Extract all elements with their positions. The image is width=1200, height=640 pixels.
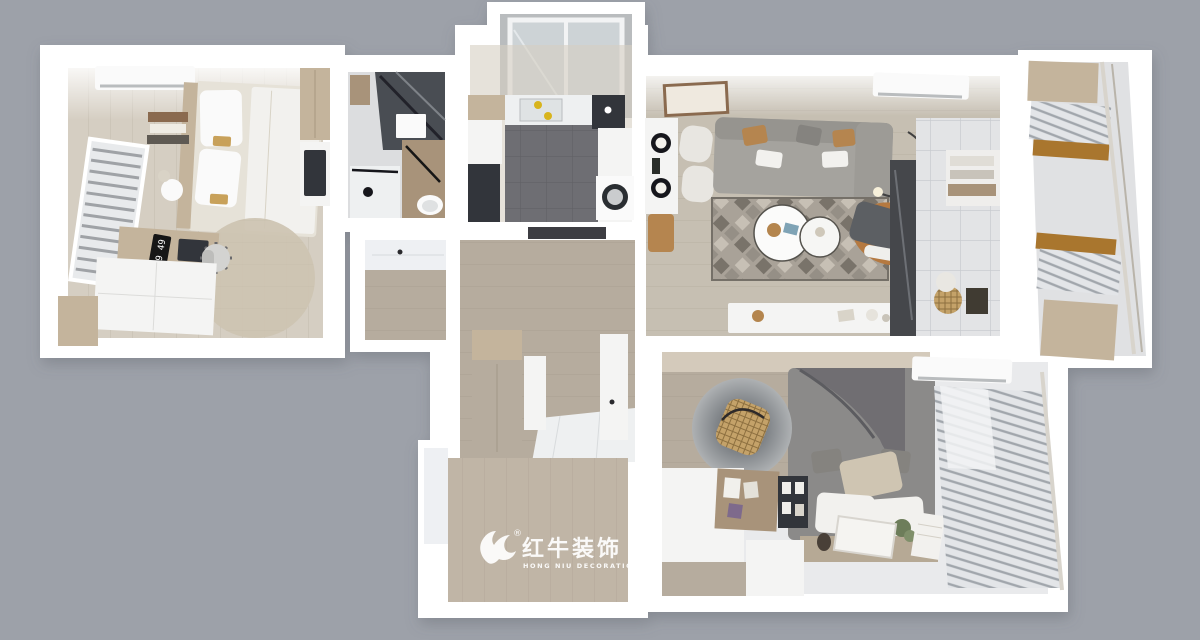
- wood-shelf: [948, 184, 996, 196]
- dining-chair: [680, 165, 715, 204]
- side-cart: [648, 214, 674, 252]
- pinned-photo: [727, 503, 743, 519]
- accent-pillow: [213, 136, 231, 147]
- door-threshold: [528, 227, 606, 239]
- hanging-chair: [692, 378, 792, 478]
- door-handle: [398, 250, 403, 255]
- bag: [817, 533, 831, 551]
- table-lamp: [158, 170, 170, 182]
- tv-console: [728, 303, 906, 333]
- window-blinds: [934, 372, 1062, 590]
- faucet: [363, 187, 373, 197]
- dishware: [534, 101, 542, 109]
- balcony-cabinet-top: [1027, 61, 1098, 103]
- bedroom-left: 9 49: [58, 66, 330, 346]
- corner-cabinet: [58, 296, 98, 346]
- cabinet-handle: [610, 400, 615, 405]
- pinned-paper: [743, 481, 759, 498]
- wall-shelf-books: [147, 112, 189, 144]
- dishware: [544, 112, 552, 120]
- balcony-right: [1027, 61, 1146, 361]
- open-wardrobe: [946, 150, 1000, 206]
- sofa-pillow: [822, 151, 849, 168]
- white-desk-low: [746, 540, 804, 596]
- brand-name-en: HONG NIU DECORATION: [523, 562, 640, 570]
- kitchen: [468, 14, 634, 239]
- watermark-platform: ® 红牛装饰 HONG NIU DECORATION: [424, 448, 640, 602]
- kitchen-shelf: [468, 95, 505, 120]
- tv-panel: [304, 150, 326, 196]
- side-table: [161, 179, 183, 201]
- bedroom-bottom: [662, 352, 1062, 596]
- dining-table: [645, 118, 678, 214]
- floorplan-render: 9 49: [0, 0, 1200, 640]
- desk-wood-front: [662, 562, 746, 596]
- folded-towels: [950, 156, 994, 166]
- vanity-counter: [350, 166, 400, 218]
- bathroom: [348, 72, 445, 218]
- brand-name-cn: 红牛装饰: [522, 536, 622, 562]
- registered-mark: ®: [513, 529, 522, 539]
- pinned-paper: [723, 477, 741, 498]
- dark-basket: [966, 288, 988, 314]
- floorplan-canvas: 9 49: [0, 0, 1200, 640]
- floor-tray: [834, 516, 896, 558]
- blinds-lower: [1036, 249, 1121, 296]
- kitchen-cabinet: [468, 120, 502, 164]
- table-plant: [652, 158, 660, 174]
- balcony-cabinet-bottom: [1040, 299, 1118, 360]
- console-decor: [752, 310, 764, 322]
- blinds-upper: [1029, 101, 1111, 144]
- water-heater: [396, 114, 426, 138]
- bath-cabinet: [350, 75, 370, 105]
- living-dining-room: [645, 72, 1000, 336]
- sofa-pillow: [832, 128, 856, 147]
- sofa: [713, 117, 894, 205]
- wall-art: [664, 82, 727, 115]
- pinboard: [714, 468, 779, 531]
- hall-cabinet-right: [600, 334, 628, 440]
- hall-unit-white: [524, 356, 546, 430]
- fridge: [468, 164, 500, 222]
- sheer-curtain: [940, 386, 996, 470]
- pillow-gray: [811, 448, 844, 474]
- hall-cabinet-upper: [472, 330, 522, 360]
- accent-pillow: [210, 194, 228, 205]
- towel-roll: [936, 272, 956, 292]
